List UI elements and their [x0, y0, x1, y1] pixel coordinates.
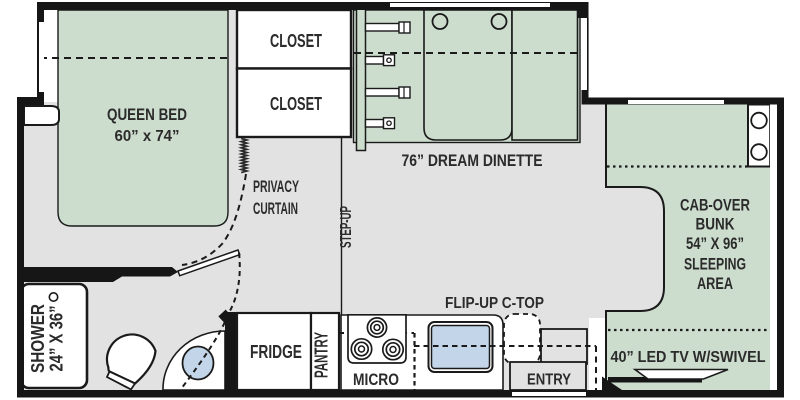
svg-text:MICRO: MICRO — [353, 371, 399, 389]
svg-text:PANTRY: PANTRY — [312, 332, 332, 378]
svg-text:FLIP-UP C-TOP: FLIP-UP C-TOP — [445, 295, 544, 312]
svg-text:76” DREAM DINETTE: 76” DREAM DINETTE — [402, 151, 543, 170]
svg-text:PRIVACY: PRIVACY — [253, 178, 299, 196]
svg-text:40” LED TV W/SWIVEL: 40” LED TV W/SWIVEL — [611, 349, 766, 366]
svg-text:AREA: AREA — [697, 274, 733, 293]
svg-text:FRIDGE: FRIDGE — [250, 342, 302, 362]
svg-text:60” x 74”: 60” x 74” — [115, 128, 180, 145]
svg-text:24” X 36”: 24” X 36” — [47, 306, 67, 372]
svg-text:CLOSET: CLOSET — [270, 31, 322, 51]
svg-text:SLEEPING: SLEEPING — [684, 255, 746, 274]
svg-text:ENTRY: ENTRY — [527, 372, 571, 389]
svg-text:CLOSET: CLOSET — [270, 94, 322, 114]
svg-text:CURTAIN: CURTAIN — [253, 200, 298, 218]
svg-text:QUEEN BED: QUEEN BED — [107, 105, 187, 124]
svg-text:54” X 96”: 54” X 96” — [686, 234, 744, 253]
svg-text:SHOWER: SHOWER — [28, 304, 48, 373]
svg-text:STEP-UP: STEP-UP — [338, 206, 355, 248]
svg-text:CAB-OVER: CAB-OVER — [680, 196, 750, 215]
svg-text:BUNK: BUNK — [696, 215, 736, 234]
